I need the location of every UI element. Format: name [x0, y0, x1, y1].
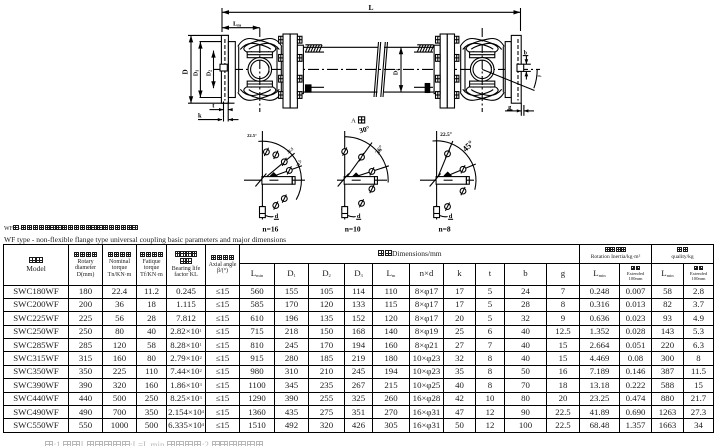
svg-text:22.5°: 22.5°: [440, 131, 452, 138]
svg-text:D3: D3: [394, 69, 400, 75]
svg-text:22.5°: 22.5°: [247, 133, 257, 138]
svg-text:β: β: [537, 75, 542, 77]
svg-text:A: A: [351, 118, 356, 125]
svg-text:22.5: 22.5: [286, 146, 295, 154]
svg-text:D2: D2: [207, 70, 213, 76]
svg-text:Lm: Lm: [233, 21, 241, 28]
svg-text:30°: 30°: [358, 124, 370, 135]
svg-text:36°: 36°: [374, 144, 385, 156]
svg-text:45°: 45°: [460, 138, 475, 153]
svg-text:D: D: [182, 69, 190, 74]
svg-text:L: L: [368, 3, 373, 12]
svg-text:D1: D1: [194, 70, 200, 76]
svg-text:k: k: [198, 112, 202, 119]
